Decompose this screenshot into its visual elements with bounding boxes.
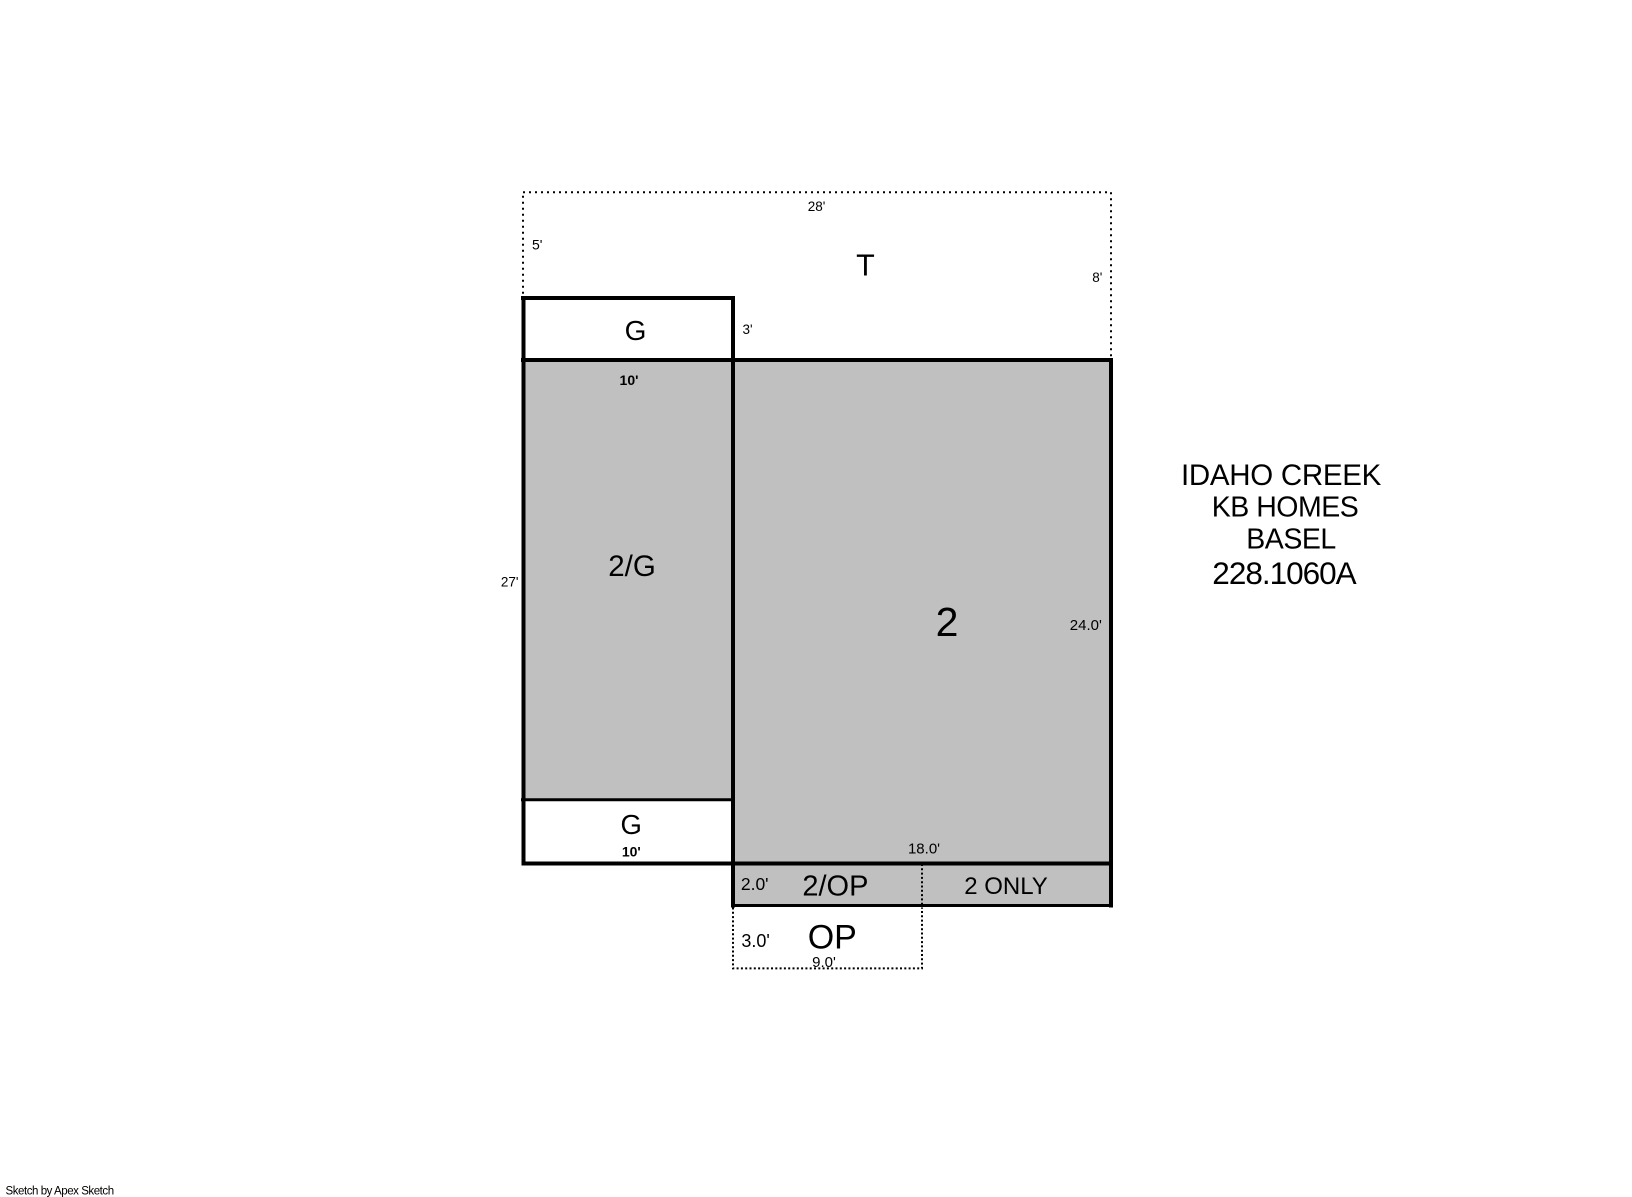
svg-text:5': 5': [532, 237, 542, 253]
svg-text:KB HOMES: KB HOMES: [1212, 491, 1358, 523]
svg-text:Sketch by Apex Sketch: Sketch by Apex Sketch: [6, 1185, 114, 1197]
svg-text:18.0': 18.0': [908, 841, 940, 858]
svg-text:8': 8': [1092, 270, 1102, 285]
svg-text:BASEL: BASEL: [1246, 523, 1335, 555]
svg-text:2 ONLY: 2 ONLY: [964, 873, 1048, 900]
svg-text:2/G: 2/G: [608, 550, 656, 583]
svg-text:28': 28': [808, 199, 826, 214]
svg-text:2.0': 2.0': [741, 874, 769, 894]
svg-text:24.0': 24.0': [1070, 617, 1102, 634]
svg-text:2: 2: [936, 599, 959, 645]
svg-text:228.1060A: 228.1060A: [1212, 555, 1356, 591]
svg-text:10': 10': [620, 372, 639, 388]
svg-text:OP: OP: [808, 919, 857, 957]
svg-text:2/OP: 2/OP: [802, 871, 868, 903]
svg-text:10': 10': [622, 843, 641, 859]
svg-text:3.0': 3.0': [741, 931, 769, 951]
svg-text:27': 27': [501, 574, 519, 589]
svg-text:9.0': 9.0': [812, 954, 836, 971]
svg-text:G: G: [621, 809, 642, 840]
svg-text:3': 3': [743, 322, 753, 337]
svg-text:IDAHO CREEK: IDAHO CREEK: [1181, 459, 1382, 492]
svg-text:T: T: [856, 248, 875, 282]
svg-text:G: G: [625, 315, 647, 346]
